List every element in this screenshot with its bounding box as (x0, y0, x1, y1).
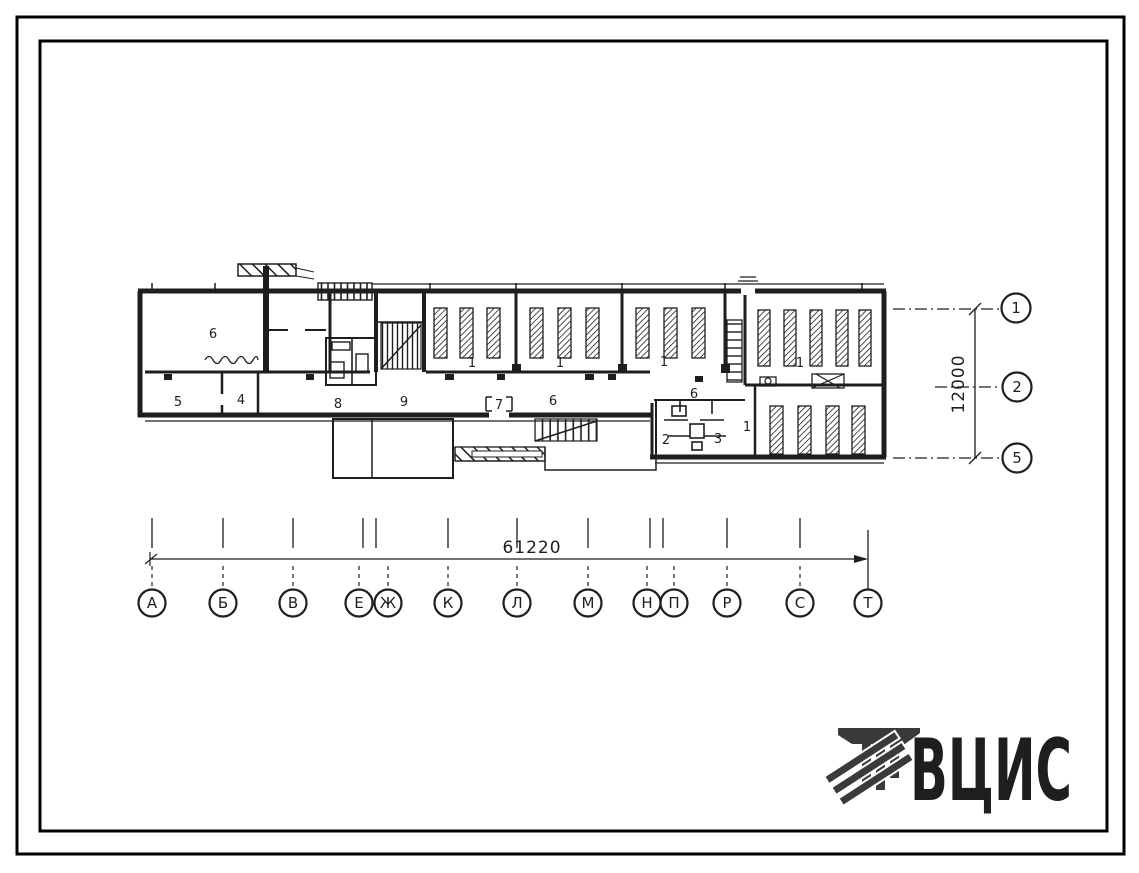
axis-letter: Н (641, 594, 652, 612)
bed-symbols-top (434, 308, 871, 366)
room-label: 1 (743, 420, 751, 435)
axis-letter: В (288, 594, 298, 612)
room-label: 6 (549, 394, 557, 409)
axis-circles-right: 1 2 5 (1002, 294, 1032, 473)
vcis-logo-text: ВЦИС (910, 721, 1072, 821)
axis-circle: 2 (1003, 373, 1032, 402)
axis-circle: Б (210, 590, 237, 617)
wc-block (326, 338, 376, 385)
axis-circle: М (575, 590, 602, 617)
folding-partition (205, 357, 258, 364)
axis-circle: Ж (375, 590, 402, 617)
axis-circle: Р (714, 590, 741, 617)
room-label: 7 (495, 398, 503, 413)
vcis-logo-icon (824, 728, 920, 806)
architectural-drawing-sheet: 6 5 4 8 9 7 6 6 2 3 1 1 1 1 1 61220 (0, 0, 1139, 869)
axis-circle: Е (346, 590, 373, 617)
axis-letter: П (668, 594, 679, 612)
axis-circle: Н (634, 590, 661, 617)
axis-circle: В (280, 590, 307, 617)
axis-leaders (152, 566, 800, 588)
axis-circle: П (661, 590, 688, 617)
exterior-stair-top (318, 283, 372, 300)
axis-number: 2 (1012, 378, 1022, 396)
axis-circle: Л (504, 590, 531, 617)
ladder-shaft (727, 320, 742, 382)
partition-walls (222, 266, 755, 457)
entrance-stair-bottom (455, 419, 656, 470)
room-label: 1 (660, 355, 668, 370)
dimension-line-vertical: 12000 (949, 303, 981, 464)
porch (333, 419, 453, 478)
axis-circle: К (435, 590, 462, 617)
axis-circles-bottom: А Б В Е Ж К Л М Н П Р С Т (139, 590, 882, 617)
room-label: 5 (174, 395, 182, 410)
dimension-value-vertical: 12000 (949, 354, 969, 413)
axis-letter: К (443, 594, 454, 612)
axis-number: 5 (1012, 449, 1022, 467)
room-label: 6 (209, 327, 217, 342)
axis-grid-bottom: 61220 А Б В Е Ж К Л М Н П Р С Т (139, 518, 882, 617)
dimension-value-horizontal: 61220 (502, 538, 561, 558)
axis-circle: А (139, 590, 166, 617)
axis-letter: Л (511, 594, 522, 612)
entrance-ramp-top (238, 264, 314, 279)
room-label: 1 (556, 356, 564, 371)
axis-number: 1 (1011, 299, 1021, 317)
room-label: 8 (334, 397, 342, 412)
axis-circle: 1 (1002, 294, 1031, 323)
room-label: 9 (400, 395, 408, 410)
axis-circle: Т (855, 590, 882, 617)
axis-letter: Р (722, 594, 731, 612)
axis-letter: Б (218, 594, 228, 612)
room-label: 6 (690, 387, 698, 402)
room-label: 1 (468, 356, 476, 371)
axis-letter: А (147, 594, 158, 612)
room-label: 3 (714, 432, 722, 447)
axis-leaders-right (893, 309, 1001, 458)
axis-letter: М (582, 594, 595, 612)
dimension-line-horizontal: 61220 (145, 538, 868, 566)
axis-letter: С (795, 594, 805, 612)
room-label: 2 (662, 433, 670, 448)
axis-grid-right: 12000 1 2 5 (893, 294, 1032, 473)
axis-letter: Т (862, 594, 873, 612)
vcis-logo: ВЦИС (824, 721, 1072, 821)
axis-circle: 5 (1003, 444, 1032, 473)
room-label: 1 (796, 356, 804, 371)
axis-letter: Е (354, 594, 363, 612)
bed-symbols-bottom (770, 406, 865, 454)
floor-plan: 6 5 4 8 9 7 6 6 2 3 1 1 1 1 1 (138, 264, 886, 478)
top-door-opening (738, 277, 758, 295)
axis-circle: С (787, 590, 814, 617)
room-label: 4 (237, 393, 245, 408)
axis-letter: Ж (380, 594, 396, 612)
stairwell (378, 322, 424, 369)
